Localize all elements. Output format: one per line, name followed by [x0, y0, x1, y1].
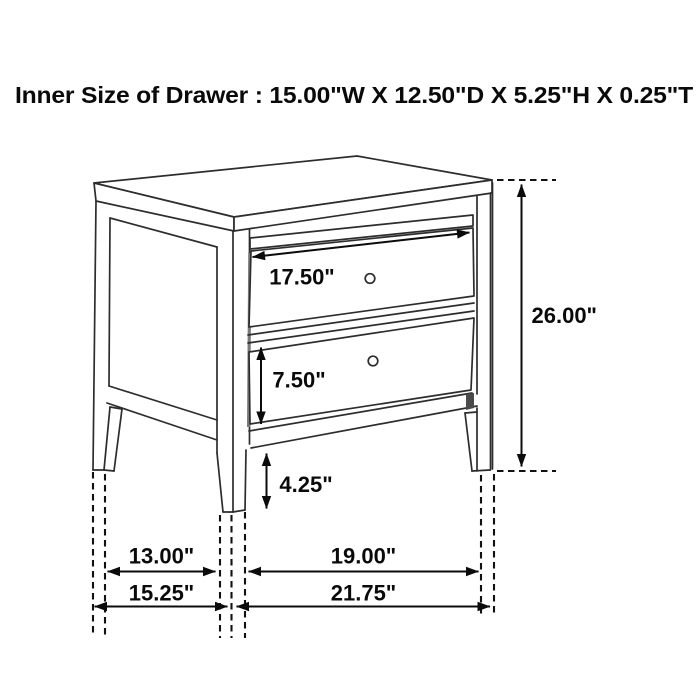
dim-front-inner-span-label: 19.00": [331, 544, 396, 569]
top-drawer-knob: [365, 274, 375, 284]
diagram-page: Inner Size of Drawer : 15.00"W X 12.50"D…: [0, 0, 700, 700]
dim-side-outer-depth-label: 15.25": [129, 581, 194, 606]
nightstand-dimension-diagram: Inner Size of Drawer : 15.00"W X 12.50"D…: [0, 0, 700, 700]
dim-overall-height-label: 26.00": [532, 303, 597, 328]
dim-drawer-face-height-label: 7.50": [272, 368, 325, 393]
dim-front-outer-width-label: 21.75": [331, 581, 396, 606]
dim-leg-height-label: 4.25": [279, 472, 332, 497]
page-title: Inner Size of Drawer : 15.00"W X 12.50"D…: [15, 82, 694, 108]
dim-drawer-width-label: 17.50": [269, 265, 334, 290]
dim-side-inner-span-label: 13.00": [129, 544, 194, 569]
apron-end-shadow: [466, 393, 474, 410]
bottom-drawer-knob: [368, 356, 378, 366]
